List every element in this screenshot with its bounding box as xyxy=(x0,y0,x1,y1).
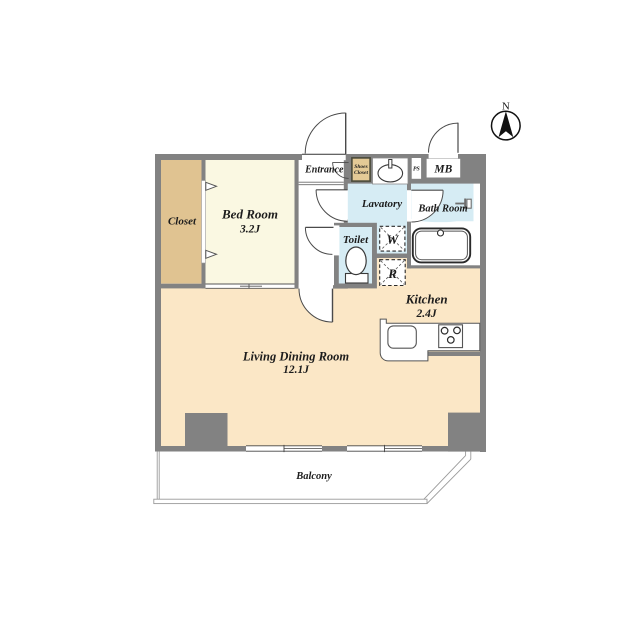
svg-text:Shoes: Shoes xyxy=(354,164,367,170)
svg-text:Kitchen: Kitchen xyxy=(405,291,448,306)
svg-text:Bath Room: Bath Room xyxy=(417,204,467,215)
svg-text:2.4J: 2.4J xyxy=(415,308,437,320)
svg-text:Closet: Closet xyxy=(354,170,369,176)
svg-text:N: N xyxy=(502,101,510,113)
svg-text:Toilet: Toilet xyxy=(343,234,369,246)
svg-text:Bed Room: Bed Room xyxy=(221,206,278,221)
svg-text:Lavatory: Lavatory xyxy=(361,198,402,210)
svg-text:Balcony: Balcony xyxy=(295,471,332,482)
svg-text:Closet: Closet xyxy=(168,215,197,227)
svg-text:W: W xyxy=(387,232,400,247)
svg-text:PS: PS xyxy=(413,167,420,173)
svg-text:Living Dining Room: Living Dining Room xyxy=(242,350,350,364)
svg-text:3.2J: 3.2J xyxy=(239,223,261,235)
svg-text:R: R xyxy=(387,266,397,281)
svg-text:MB: MB xyxy=(433,164,452,176)
svg-text:Entrance: Entrance xyxy=(304,165,344,176)
svg-text:12.1J: 12.1J xyxy=(283,364,310,376)
